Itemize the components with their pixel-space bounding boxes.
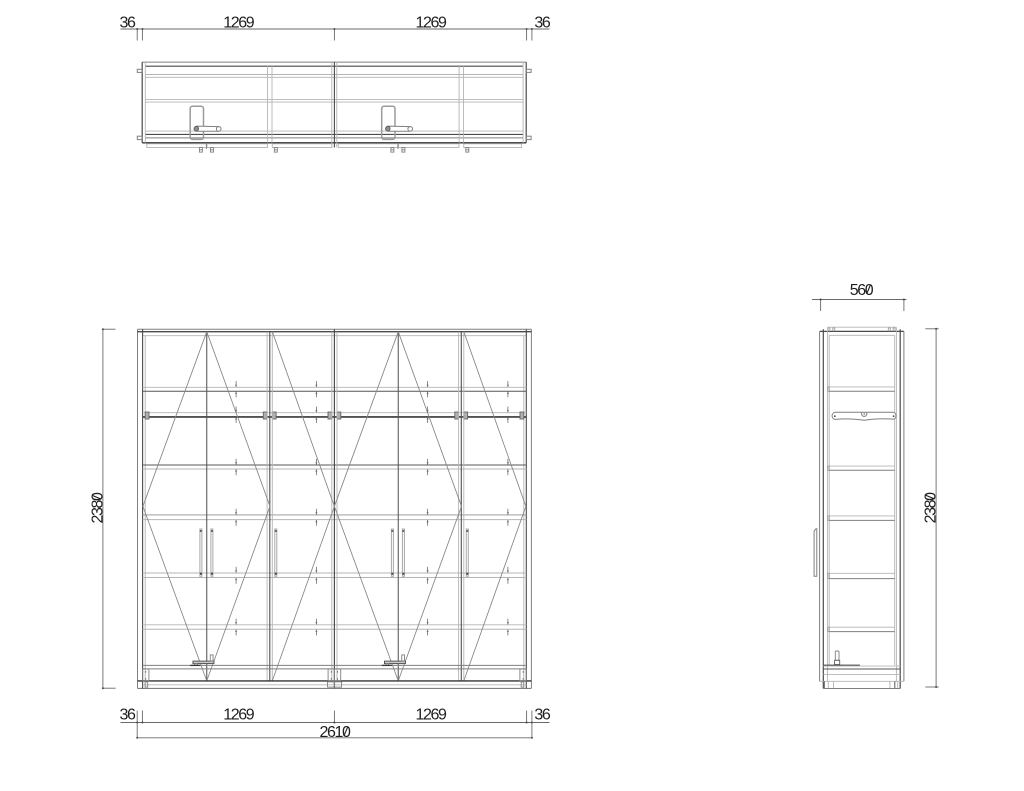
svg-text:2380: 2380 — [89, 492, 106, 523]
svg-text:36: 36 — [534, 15, 550, 32]
svg-text:560: 560 — [850, 282, 874, 299]
svg-text:1269: 1269 — [223, 15, 254, 32]
svg-text:2610: 2610 — [320, 724, 351, 741]
svg-text:1269: 1269 — [416, 707, 447, 724]
svg-text:2380: 2380 — [923, 492, 940, 523]
svg-text:1269: 1269 — [416, 15, 447, 32]
svg-text:1269: 1269 — [223, 707, 254, 724]
svg-text:36: 36 — [534, 707, 550, 724]
svg-text:36: 36 — [120, 15, 136, 32]
svg-text:36: 36 — [120, 707, 136, 724]
